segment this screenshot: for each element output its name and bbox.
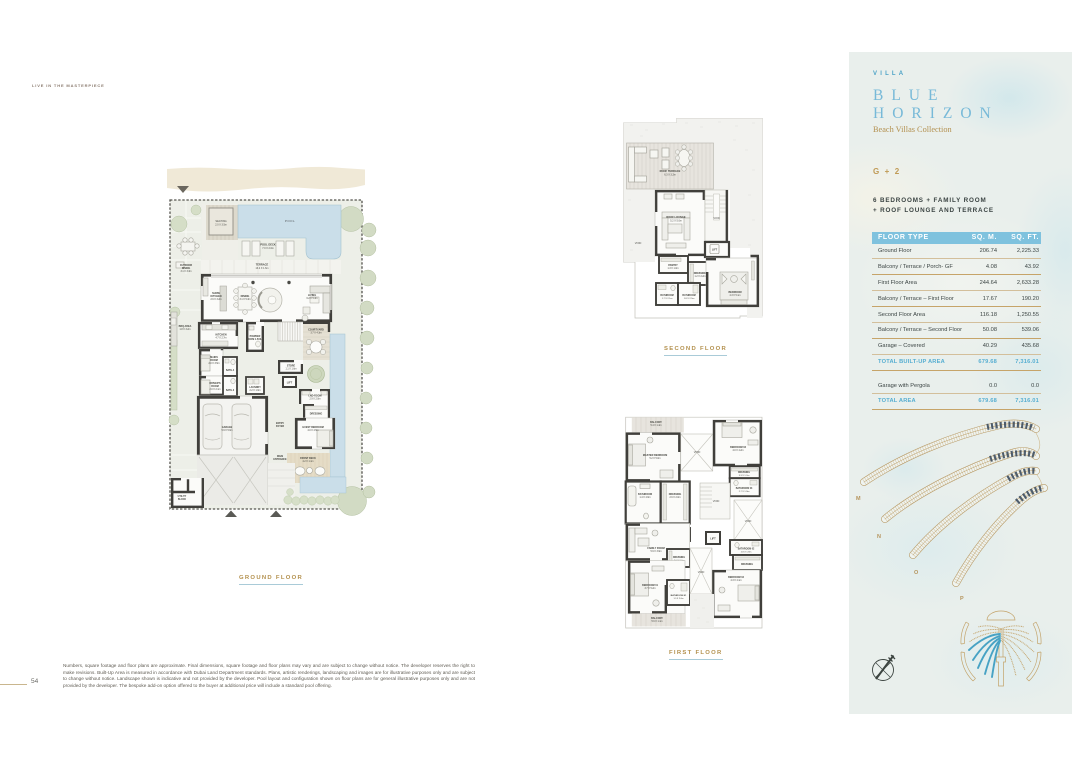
svg-text:ENTRANCE: ENTRANCE [273,458,287,461]
svg-text:5.9 X 3.9m: 5.9 X 3.9m [650,551,661,553]
svg-text:COURTYARD: COURTYARD [308,329,324,332]
svg-text:LIFT: LIFT [712,249,718,252]
svg-text:GUEST BEDROOM: GUEST BEDROOM [302,426,323,429]
svg-text:2.0 X 3.5m: 2.0 X 3.5m [215,223,227,226]
svg-text:ROOM: ROOM [211,385,218,388]
svg-text:2.8 X 1.8m: 2.8 X 1.8m [741,551,752,553]
svg-text:M: M [856,496,861,502]
svg-text:VOID: VOID [745,519,752,523]
svg-text:SEATING: SEATING [215,219,226,223]
svg-text:3.7 X 4.3m: 3.7 X 4.3m [310,333,321,335]
svg-text:VOID: VOID [713,216,719,220]
svg-text:O: O [914,570,919,576]
svg-text:1.4 X 4.6m: 1.4 X 4.6m [639,497,650,499]
svg-text:KITCHEN: KITCHEN [215,334,226,337]
svg-text:LIVING: LIVING [308,294,316,297]
svg-text:VOID: VOID [713,499,720,503]
svg-text:5.6 X 1.1m: 5.6 X 1.1m [651,621,662,623]
svg-text:LIFT: LIFT [710,537,716,541]
svg-text:P: P [960,596,964,602]
svg-text:BBQ AREA: BBQ AREA [179,325,192,328]
svg-text:5.2 X 5.0m: 5.2 X 5.0m [649,458,660,460]
svg-text:BLOCK: BLOCK [178,499,187,501]
svg-text:BATHROOM 02: BATHROOM 02 [738,548,755,551]
svg-text:UTILITY: UTILITY [178,496,187,498]
svg-text:4.0 X 4.5m: 4.0 X 4.5m [307,430,318,432]
svg-text:2.2 X 1.6m: 2.2 X 1.6m [249,390,260,392]
svg-text:1.8 X 2.5m: 1.8 X 2.5m [684,298,695,300]
svg-text:1.1 X 1.6m: 1.1 X 1.6m [285,369,296,371]
svg-text:DRESSING: DRESSING [310,413,323,416]
svg-text:BATH-4: BATH-4 [226,369,235,372]
svg-text:1.7 X 2.1m: 1.7 X 2.1m [662,298,673,300]
svg-text:1.8 X 3.2m: 1.8 X 3.2m [179,329,190,331]
svg-text:3.1 X 5.3m: 3.1 X 5.3m [239,299,250,301]
svg-text:2.6 X 2.0m: 2.6 X 2.0m [669,497,680,499]
svg-text:LND-ROOM: LND-ROOM [308,395,321,398]
svg-text:BALCONY: BALCONY [650,421,662,424]
svg-text:ROOM: ROOM [210,359,217,362]
svg-text:2.7 X 1.9m: 2.7 X 1.9m [739,491,750,493]
svg-text:5.4 X 1.4m: 5.4 X 1.4m [650,425,661,427]
svg-text:FAMILY ROOM: FAMILY ROOM [647,547,664,550]
svg-text:LIFT: LIFT [287,380,293,384]
svg-text:GARAGE: GARAGE [222,426,233,429]
svg-text:BATHROOM 03: BATHROOM 03 [736,487,753,490]
svg-text:BALCONY: BALCONY [651,617,663,620]
svg-text:DRESSING: DRESSING [694,272,707,275]
svg-text:BATHROOM: BATHROOM [638,493,652,496]
svg-text:PANTRY: PANTRY [668,264,678,267]
svg-text:DRESSING: DRESSING [669,493,682,496]
svg-text:2.9 X 2.0m: 2.9 X 2.0m [309,399,320,401]
svg-text:BEDROOM: BEDROOM [728,291,741,294]
svg-text:DINING: DINING [182,267,191,270]
svg-text:6.3 X 3.2m: 6.3 X 3.2m [664,173,676,176]
svg-text:DINING: DINING [241,295,250,298]
svg-text:BATHROOM: BATHROOM [660,294,673,297]
svg-text:ROOF LOUNGE: ROOF LOUNGE [666,215,686,219]
svg-text:2.0 X 3.5m: 2.0 X 3.5m [208,363,219,365]
svg-text:2.6 X 3.2m: 2.6 X 3.2m [210,299,221,301]
svg-text:3.3 X 1.2m: 3.3 X 1.2m [739,475,750,477]
svg-text:BEDROOM 03: BEDROOM 03 [730,446,746,449]
svg-text:ROOF TERRACE: ROOF TERRACE [660,169,681,173]
svg-text:STORE: STORE [287,365,296,368]
svg-text:4.0 X 4.2m: 4.0 X 4.2m [732,450,743,452]
svg-text:13.4 X 1.6m: 13.4 X 1.6m [256,267,269,270]
svg-text:VOID: VOID [635,241,642,245]
svg-text:BATHROOM 01: BATHROOM 01 [671,594,688,597]
svg-text:4.2 X 1.1m: 4.2 X 1.1m [302,461,313,463]
svg-text:3.7 X 5.2m: 3.7 X 5.2m [644,588,655,590]
svg-text:4.3 X 4.1m: 4.3 X 4.1m [730,580,741,582]
svg-text:KITCHEN: KITCHEN [210,295,221,298]
svg-text:5.9 X 5.6m: 5.9 X 5.6m [221,430,232,432]
svg-text:6.2 X 5.3m: 6.2 X 5.3m [306,298,317,300]
svg-text:BATH-3: BATH-3 [226,389,235,392]
svg-text:7.0 X 2.0m: 7.0 X 2.0m [262,247,274,250]
svg-text:1.2 X 2.2m: 1.2 X 2.2m [694,276,705,278]
svg-text:BEDROOM 01: BEDROOM 01 [642,584,658,587]
svg-text:N: N [877,534,881,540]
svg-text:DRESSING: DRESSING [738,472,750,474]
svg-text:FOYER: FOYER [276,425,285,428]
svg-text:BEDROOM 02: BEDROOM 02 [728,576,744,579]
svg-text:DRESSING: DRESSING [741,564,753,566]
svg-text:VOID: VOID [694,450,701,454]
svg-text:DRESSING: DRESSING [673,557,685,559]
svg-text:MASTER BEDROOM: MASTER BEDROOM [643,454,667,457]
svg-text:4.7 X 2.7m: 4.7 X 2.7m [215,338,226,340]
svg-text:ROOM 1.5X3.4: ROOM 1.5X3.4 [247,338,264,341]
svg-text:FRONT DECK: FRONT DECK [300,457,316,460]
svg-text:3.1 X 3.3m: 3.1 X 3.3m [180,271,191,273]
svg-text:POOL: POOL [285,219,295,223]
svg-text:1.9 X 2.6m: 1.9 X 2.6m [673,598,683,600]
svg-text:1.3 X 1.0m: 1.3 X 1.0m [667,268,678,270]
svg-text:5.2 X 5.0m: 5.2 X 5.0m [670,219,682,222]
svg-text:2.0 X 2.1m: 2.0 X 2.1m [209,389,220,391]
svg-text:BATHROOM: BATHROOM [682,294,695,297]
svg-text:4.3 X 5.1m: 4.3 X 5.1m [729,295,740,297]
svg-text:LAUNDRY: LAUNDRY [249,386,261,389]
svg-text:VOID: VOID [698,570,705,574]
